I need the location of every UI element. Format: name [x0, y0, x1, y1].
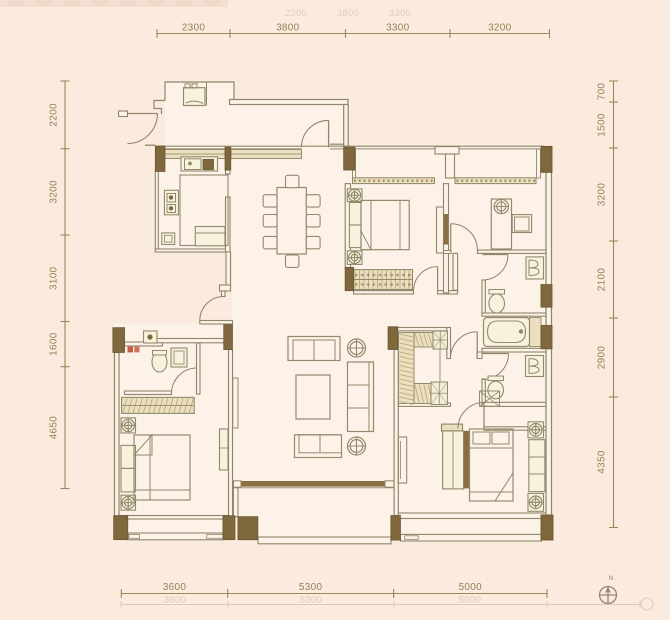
svg-text:3800: 3800	[337, 8, 359, 19]
svg-text:3800: 3800	[276, 23, 300, 34]
svg-text:2300: 2300	[182, 23, 206, 34]
svg-text:3600: 3600	[164, 595, 186, 606]
svg-text:3200: 3200	[597, 183, 608, 207]
svg-text:3600: 3600	[163, 582, 187, 593]
svg-text:1500: 1500	[597, 113, 608, 137]
svg-text:3200: 3200	[49, 180, 60, 204]
svg-text:1600: 1600	[49, 332, 60, 356]
svg-text:N: N	[609, 575, 614, 582]
svg-text:5000: 5000	[459, 582, 483, 593]
svg-text:5000: 5000	[459, 595, 481, 606]
svg-text:2900: 2900	[597, 346, 608, 370]
svg-text:3200: 3200	[488, 23, 512, 34]
svg-text:4650: 4650	[49, 416, 60, 440]
svg-text:3300: 3300	[386, 23, 410, 34]
svg-text:2200: 2200	[49, 103, 60, 127]
svg-text:3300: 3300	[389, 8, 411, 19]
svg-text:4350: 4350	[597, 450, 608, 474]
svg-text:2300: 2300	[285, 8, 307, 19]
svg-text:5300: 5300	[299, 582, 323, 593]
svg-text:700: 700	[597, 83, 608, 101]
svg-text:2100: 2100	[597, 268, 608, 292]
svg-text:3100: 3100	[49, 266, 60, 290]
svg-text:5300: 5300	[300, 595, 322, 606]
